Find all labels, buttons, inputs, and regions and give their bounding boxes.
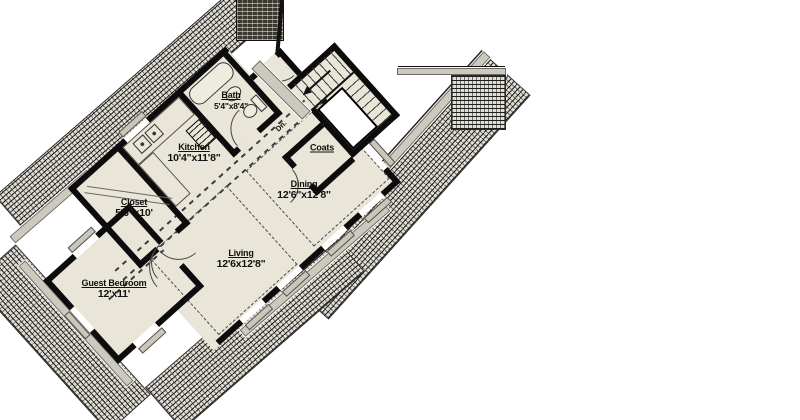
hatch-stub-right bbox=[452, 76, 505, 129]
room-label-coats: Coats bbox=[310, 143, 334, 154]
floor-plan-canvas: Bath 5'4"x8'4" Kitchen 10'4"x11'8" Coats… bbox=[0, 0, 800, 420]
kitchen-dims: 10'4"x11'8" bbox=[167, 153, 220, 164]
room-label-dining: Dining 12'6"x12'8" bbox=[277, 179, 331, 201]
bath-dims: 5'4"x8'4" bbox=[214, 101, 248, 112]
guest-bedroom-dims: 12'x11' bbox=[82, 289, 147, 300]
room-label-living: Living 12'6x12'8" bbox=[217, 248, 266, 270]
bath-name: Bath bbox=[214, 90, 248, 101]
closet-dims: 5'6"x10' bbox=[115, 208, 153, 219]
room-label-closet: Closet 5'6"x10' bbox=[115, 197, 153, 219]
room-label-bath: Bath 5'4"x8'4" bbox=[214, 90, 248, 112]
right-deck-strip-horizontal bbox=[398, 69, 505, 74]
room-label-guest-bedroom: Guest Bedroom 12'x11' bbox=[82, 278, 147, 300]
living-dims: 12'6x12'8" bbox=[217, 259, 266, 270]
coats-name: Coats bbox=[310, 143, 334, 154]
room-label-kitchen: Kitchen 10'4"x11'8" bbox=[167, 142, 220, 164]
dining-dims: 12'6"x12'8" bbox=[277, 190, 331, 201]
